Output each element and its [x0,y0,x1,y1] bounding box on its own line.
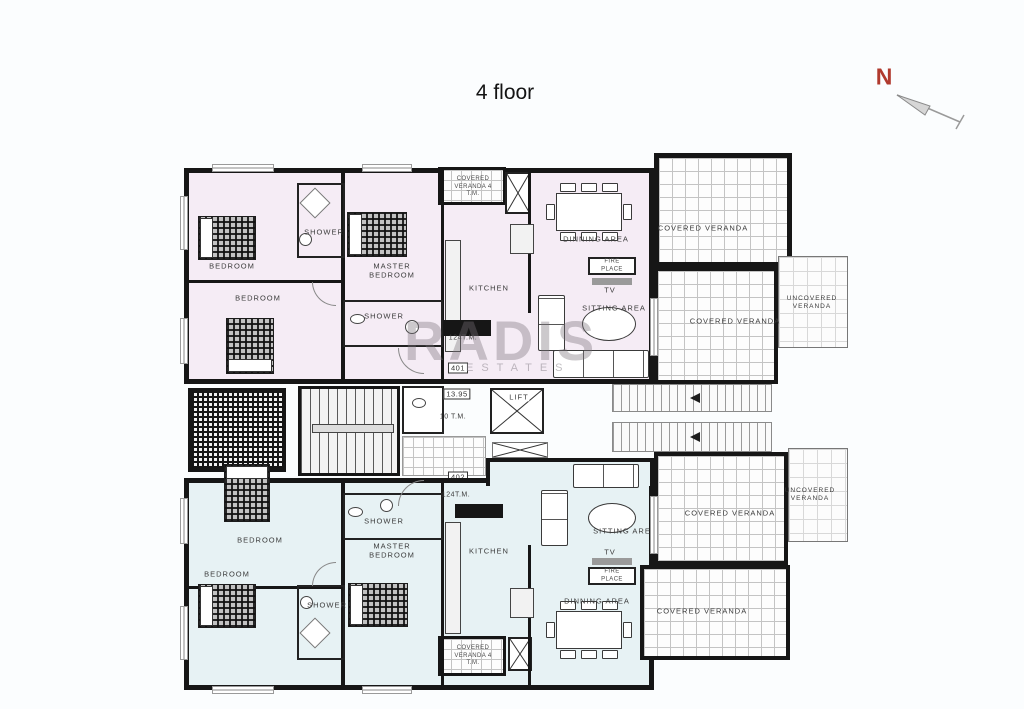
tv-unit [592,278,632,285]
chair [623,622,632,638]
lift-lobby-shaft [492,442,548,458]
chair [602,183,618,192]
veranda-label: UNCOVERED VERANDA [781,487,839,503]
chair [623,204,632,220]
dining-table [556,193,622,231]
bed [224,464,270,522]
tv-unit [592,558,632,565]
window [212,164,274,172]
veranda-label: COVERED VERANDA 4 T.M. [452,645,494,668]
chair [581,183,597,192]
room-label: SITTING AREA [593,526,657,535]
veranda-label: UNCOVERED VERANDA [783,295,841,311]
veranda-label: COVERED VERANDA 4 T.M. [452,176,494,199]
veranda-label: COVERED VERANDA [657,606,747,615]
north-arrow-icon [868,80,978,135]
window [650,496,658,554]
veranda-label: COVERED VERANDA [658,223,748,232]
window [180,196,188,250]
room-label: SHOWER [364,311,404,320]
veranda-label: COVERED VERANDA [685,508,775,517]
fireplace-label: FIRE PLACE [597,569,627,584]
dining-table [556,611,622,649]
covered-veranda-top-right [654,153,792,267]
stove [510,588,534,618]
room-label: SHOWER [307,600,347,609]
tv-label: TV [604,285,616,294]
page-title: 4 floor [476,81,534,105]
light-well [188,388,286,472]
tv-label: TV [604,547,616,556]
window [180,606,188,660]
wc-room [402,386,444,434]
room-label: BEDROOM [209,261,255,270]
chair [546,204,555,220]
kitchen-counter [445,522,461,634]
room-label: DINNING AREA [563,234,629,243]
shower-tray [380,499,393,512]
toilet [350,314,365,324]
window [362,686,412,694]
veranda-label: COVERED VERANDA [690,316,780,325]
floor-plan-page: 4 floor N BEDROOM BEDROOM SHOWE [0,0,1024,709]
corridor-tiles [402,436,486,476]
chair [560,183,576,192]
watermark-subtitle: ESTATES [466,362,571,374]
lift-label: LIFT [508,392,529,401]
bed [347,212,407,257]
bed [198,216,256,260]
room-label: DINNING AREA [564,596,630,605]
room-label: SHOWER [304,227,344,236]
stove [510,224,534,254]
chair [581,650,597,659]
window [180,318,188,364]
sofa [541,490,568,546]
stair-rail [312,424,394,433]
fireplace-label: FIRE PLACE [597,259,627,274]
room-label: KITCHEN [469,283,509,292]
window [650,298,658,356]
room-label: SHOWER [364,516,404,525]
chair [546,622,555,638]
stair-arrow-icon [690,432,700,442]
room-label: BEDROOM [204,569,250,578]
bed [348,583,408,627]
window [212,686,274,694]
room-label: MASTER BEDROOM [363,262,421,281]
landing-area: 10 T.M. [440,414,466,421]
room-label: KITCHEN [469,546,509,555]
room-label: BEDROOM [235,293,281,302]
unit-area: 124T.M. [442,492,470,499]
room-label: BEDROOM [237,535,283,544]
stair-arrow-icon [690,393,700,403]
kitchen-island [455,504,503,518]
bed [198,584,256,628]
window [180,498,188,544]
chair [560,650,576,659]
room-label: MASTER BEDROOM [363,542,421,561]
level-badge: 13.95 [443,389,470,400]
chair [602,650,618,659]
bed [226,318,274,374]
sofa [573,464,639,488]
toilet [412,398,426,408]
toilet [348,507,363,517]
window [362,164,412,172]
